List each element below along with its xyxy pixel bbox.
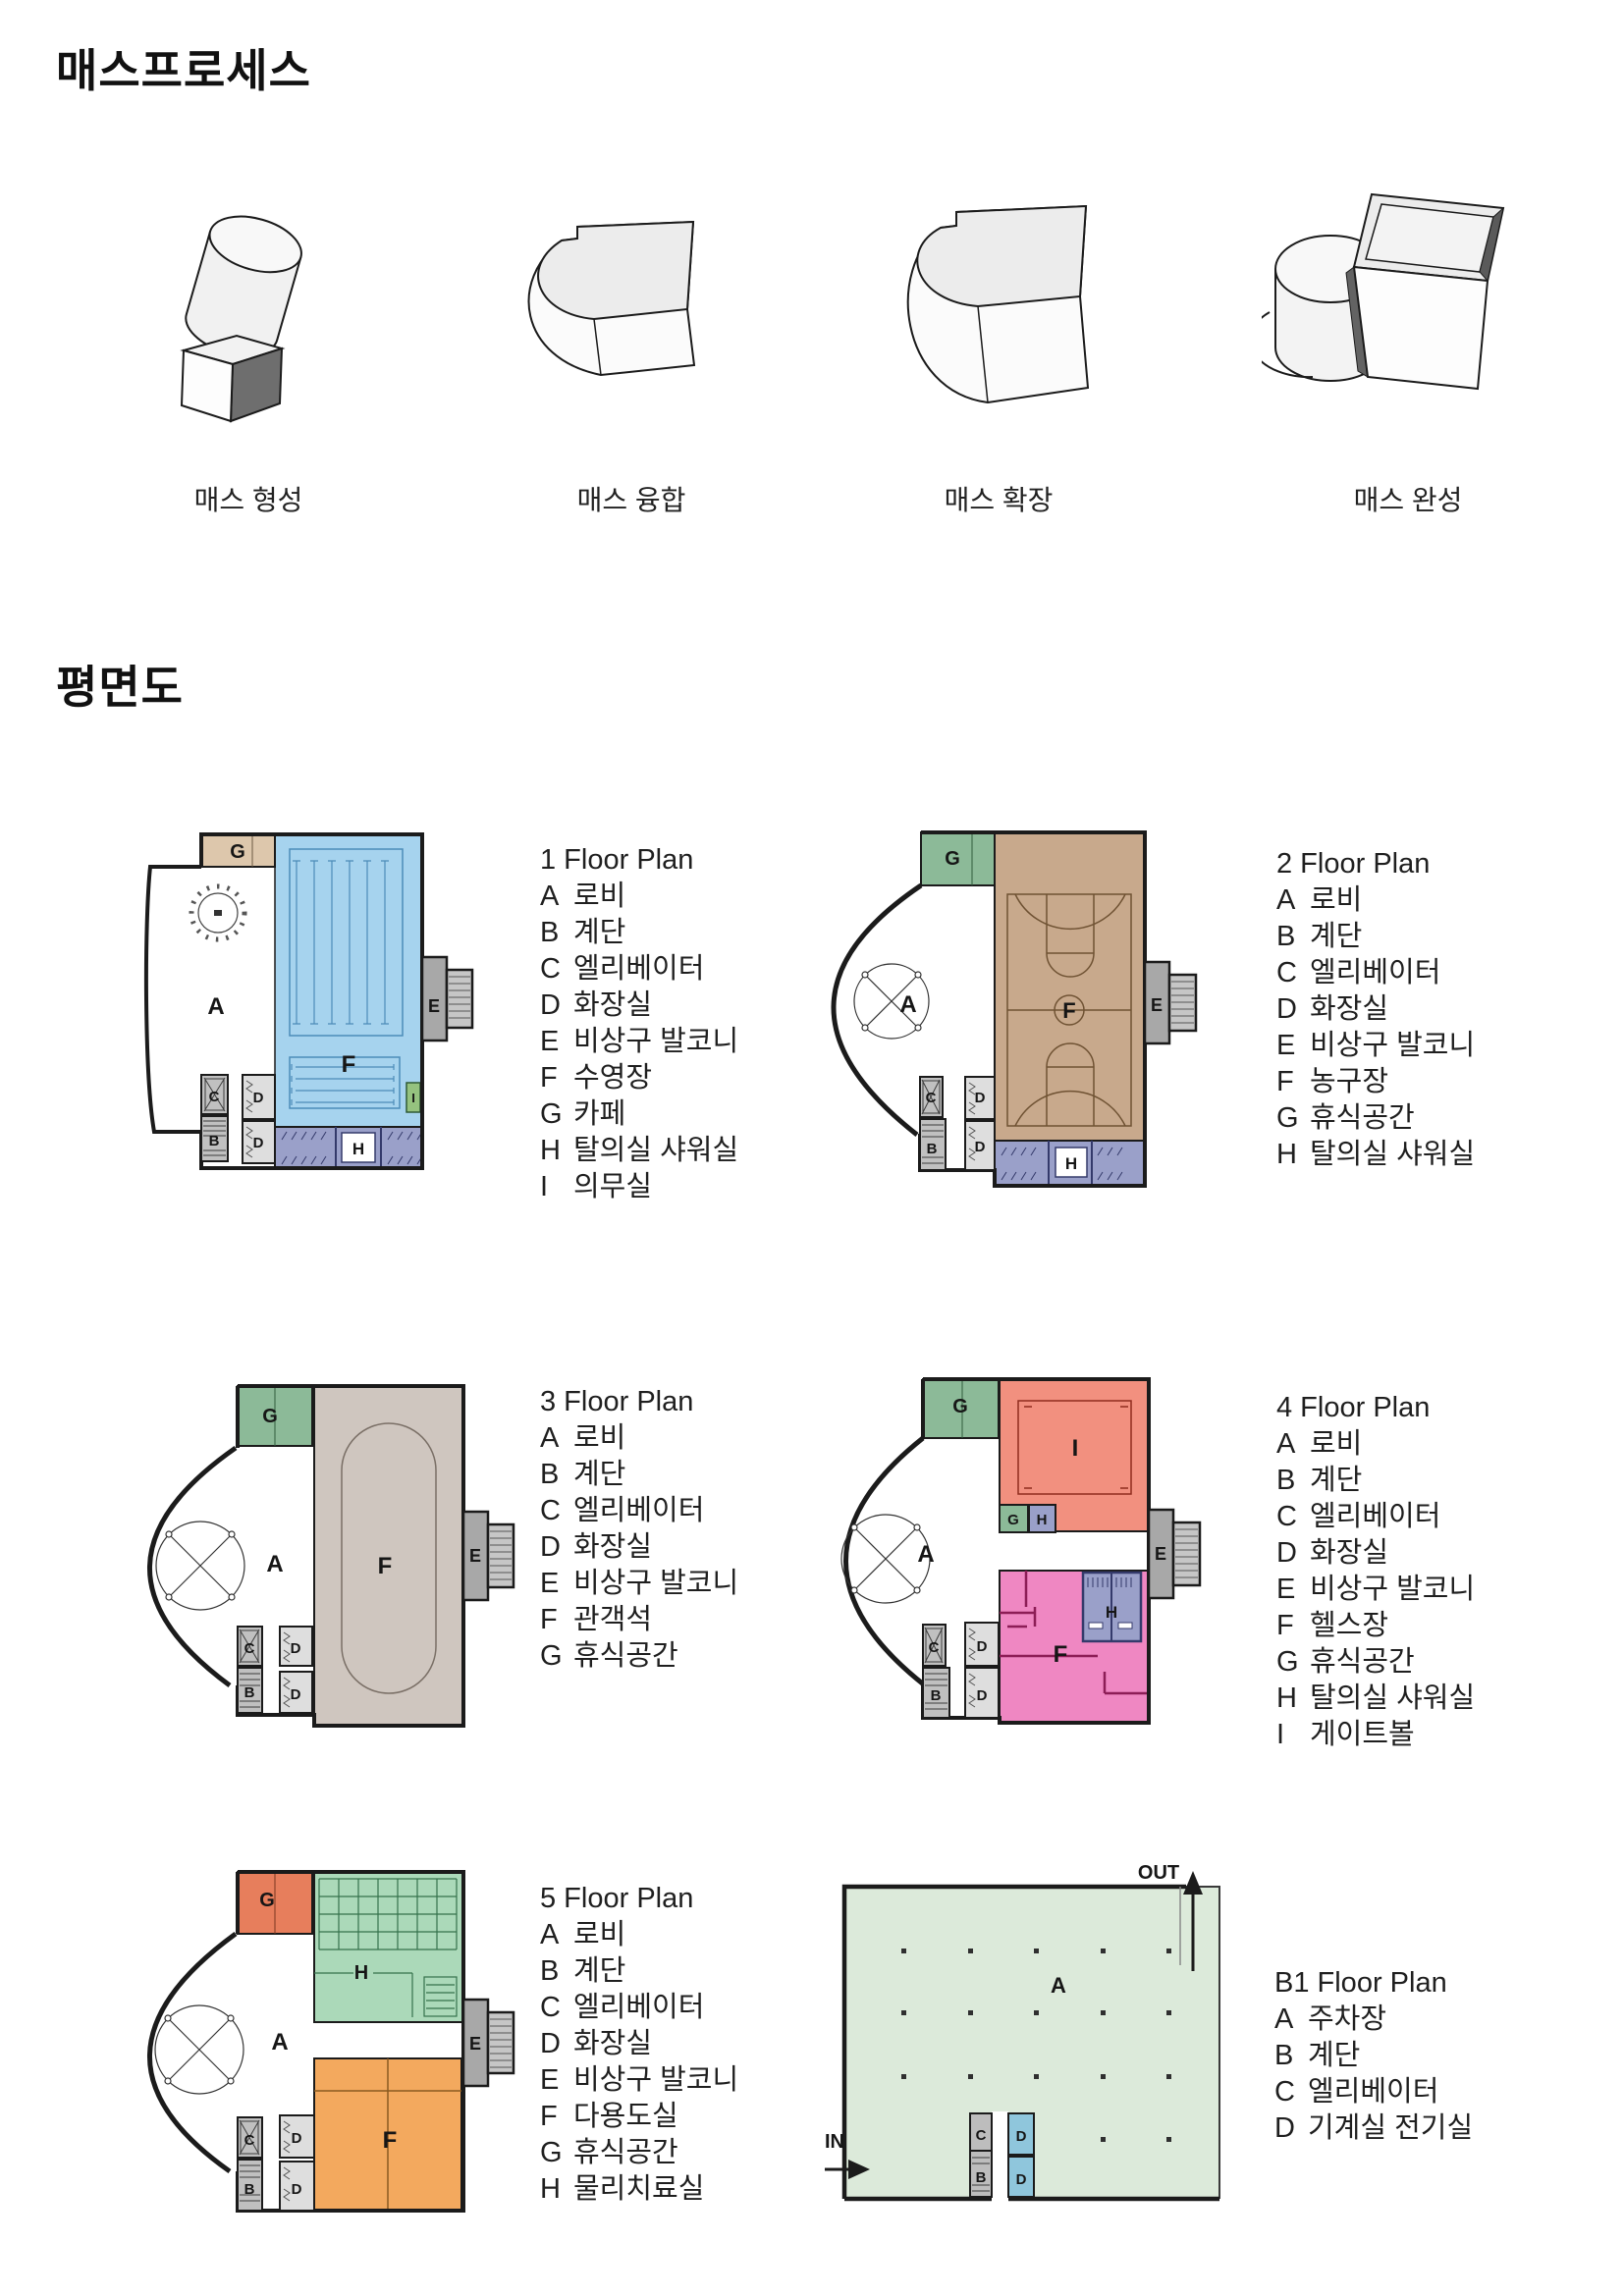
room-label-d: D [977,1687,988,1704]
atrium-void-icon [156,1522,244,1610]
floor-plan-title: 2 Floor Plan [1276,846,1475,882]
page-title: 매스프로세스 [56,35,311,100]
room-label-h: H [1106,1603,1117,1622]
out-label: OUT [1138,1862,1179,1884]
room-label-a: A [271,2029,288,2056]
floor-plan-4: G I G H A F H E C B D D [825,1360,1276,1752]
floor-plan-title: 3 Floor Plan [540,1384,738,1420]
room-label-g: G [262,1406,278,1427]
legend-row: E비상구 발코니 [540,2062,738,2099]
room-label-c: C [926,1090,937,1106]
legend-row: D화장실 [1276,1535,1475,1572]
curved-lobby-wall [149,1448,236,1685]
legend-row: B계단 [540,915,738,951]
room-label-h: H [1065,1154,1077,1173]
mass-caption-1: 매스 형성 [140,479,356,518]
room-label-b: B [976,2169,987,2186]
room-label-d: D [291,1640,301,1657]
legend-row: E비상구 발코니 [540,1024,738,1060]
room-label-b: B [244,2181,255,2198]
curved-lobby-wall [845,1438,925,1685]
legend-floor-b1: B1 Floor Plan A주차장 B계단 C엘리베이터 D기계실 전기실 [1274,1965,1473,2147]
legend-row: F농구장 [1276,1064,1475,1100]
room-label-e: E [1155,1544,1166,1564]
room-label-c: C [976,2127,987,2144]
mass-step-3-figure [884,187,1105,410]
legend-row: C엘리베이터 [1276,1499,1475,1535]
legend-row: D화장실 [540,1529,738,1566]
mass-caption-4: 매스 완성 [1300,479,1516,518]
room-label-h: H [352,1140,364,1158]
legend-row: G휴식공간 [1276,1644,1475,1681]
legend-row: B계단 [540,1953,738,1990]
room-label-f: F [383,2127,398,2154]
legend-row: A로비 [540,1420,738,1457]
box-mass [1346,194,1503,389]
room-h-therapy [314,1872,463,2022]
cube-mass [182,336,282,421]
atrium-void-icon [155,2005,244,2094]
legend-row: H탈의실 샤워실 [1276,1137,1475,1173]
legend-row: B계단 [1274,2038,1473,2074]
legend-row: D화장실 [1276,991,1475,1028]
legend-row: A로비 [1276,882,1475,919]
room-label-a: A [1051,1973,1066,1998]
room-label-g: G [259,1890,275,1911]
floor-plan-title: B1 Floor Plan [1274,1965,1473,2002]
mass-step-4-figure [1262,175,1519,412]
room-label-c: C [929,1639,940,1656]
legend-row: G카페 [540,1096,738,1133]
legend-row: C엘리베이터 [1276,955,1475,991]
room-label-d: D [291,1686,301,1703]
legend-row: E비상구 발코니 [540,1566,738,1602]
curved-lobby-wall [149,1934,236,2171]
room-label-d: D [975,1090,986,1106]
legend-row: F관객석 [540,1602,738,1638]
legend-row: B계단 [1276,1463,1475,1499]
room-label-c: C [244,1640,255,1657]
legend-row: A로비 [1276,1426,1475,1463]
in-label: IN [825,2131,844,2153]
atrium-void-icon [854,964,929,1039]
room-label-d: D [292,2181,302,2198]
floor-plan-5: G H A F E C B D D [118,1855,540,2268]
room-label-i: I [1072,1435,1079,1462]
mass-step-1-figure [172,191,309,427]
legend-floor-3: 3 Floor Plan A로비 B계단 C엘리베이터 D화장실 E비상구 발코… [540,1384,738,1675]
room-label-f: F [1062,998,1075,1023]
room-label-d: D [1016,2128,1027,2145]
room-label-i: I [411,1091,415,1105]
room-label-a: A [266,1551,283,1577]
room-label-g: G [945,848,960,870]
legend-row: D화장실 [540,2026,738,2062]
room-label-b: B [927,1141,938,1157]
legend-row: D화장실 [540,988,738,1024]
room-label-e: E [469,2034,481,2054]
legend-row: H탈의실 샤워실 [540,1133,738,1169]
room-label-d: D [292,2130,302,2147]
legend-floor-5: 5 Floor Plan A로비 B계단 C엘리베이터 D화장실 E비상구 발코… [540,1881,738,2208]
legend-row: A로비 [540,1917,738,1953]
legend-row: B계단 [1276,919,1475,955]
legend-floor-4: 4 Floor Plan A로비 B계단 C엘리베이터 D화장실 E비상구 발코… [1276,1390,1475,1753]
room-label-a: A [207,993,224,1020]
floor-plan-title: 4 Floor Plan [1276,1390,1475,1426]
legend-row: H탈의실 샤워실 [1276,1681,1475,1717]
legend-row: G휴식공간 [540,2135,738,2171]
room-label-b: B [209,1133,220,1149]
legend-row: F다용도실 [540,2099,738,2135]
room-label-c: C [244,2132,255,2149]
room-label-d: D [253,1135,264,1151]
floor-plan-b1: OUT IN A C B D D [825,1855,1276,2258]
room-label-d: D [253,1090,264,1106]
room-label-c: C [209,1089,220,1105]
core-gap [992,2111,1008,2202]
room-label-h: H [354,1962,368,1984]
mass-step-2-figure [501,211,702,383]
floor-plan-2: G A F E C B D D H [815,829,1208,1191]
floor-plan-title: 1 Floor Plan [540,842,738,879]
room-label-f: F [1054,1641,1068,1668]
legend-row: E비상구 발코니 [1276,1028,1475,1064]
legend-row: C엘리베이터 [540,1990,738,2026]
legend-row: C엘리베이터 [540,951,738,988]
room-label-g: G [230,841,245,863]
room-label-g: G [952,1396,968,1417]
legend-floor-1: 1 Floor Plan A로비 B계단 C엘리베이터 D화장실 E비상구 발코… [540,842,738,1205]
room-label-b: B [244,1684,255,1701]
legend-row: C엘리베이터 [540,1493,738,1529]
legend-floor-2: 2 Floor Plan A로비 B계단 C엘리베이터 D화장실 E비상구 발코… [1276,846,1475,1173]
room-label-d: D [977,1638,988,1655]
room-label-f: F [378,1553,393,1579]
room-label-e: E [428,996,440,1016]
room-label-d: D [975,1139,986,1155]
legend-row: A로비 [540,879,738,915]
legend-row: E비상구 발코니 [1276,1572,1475,1608]
legend-row: G휴식공간 [540,1638,738,1675]
room-label-h: H [1037,1512,1048,1528]
legend-row: G휴식공간 [1276,1100,1475,1137]
legend-row: F수영장 [540,1060,738,1096]
floor-plan-3: G A F E C B D D [118,1369,520,1737]
room-label-a: A [917,1541,934,1568]
legend-row: B계단 [540,1457,738,1493]
legend-row: C엘리베이터 [1274,2074,1473,2110]
curved-lobby-wall [146,867,201,1132]
floor-plan-title: 5 Floor Plan [540,1881,738,1917]
mass-caption-2: 매스 융합 [523,479,739,518]
room-label-d: D [1016,2171,1027,2188]
legend-row: A주차장 [1274,2002,1473,2038]
room-label-e: E [1151,995,1163,1015]
floor-plan-1: G A F E C B D D H I [142,829,476,1173]
room-label-b: B [931,1687,942,1704]
legend-row: D기계실 전기실 [1274,2110,1473,2147]
mass-caption-3: 매스 확장 [891,479,1107,518]
legend-row: H물리치료실 [540,2171,738,2208]
room-label-g: G [1007,1512,1019,1528]
legend-row: I게이트볼 [1276,1717,1475,1753]
room-f-basketball [995,832,1145,1141]
room-label-f: F [342,1051,356,1078]
room-label-e: E [469,1546,481,1566]
floor-section-title: 평면도 [56,652,184,717]
legend-row: F헬스장 [1276,1608,1475,1644]
room-label-a: A [899,991,916,1018]
legend-row: I의무실 [540,1169,738,1205]
